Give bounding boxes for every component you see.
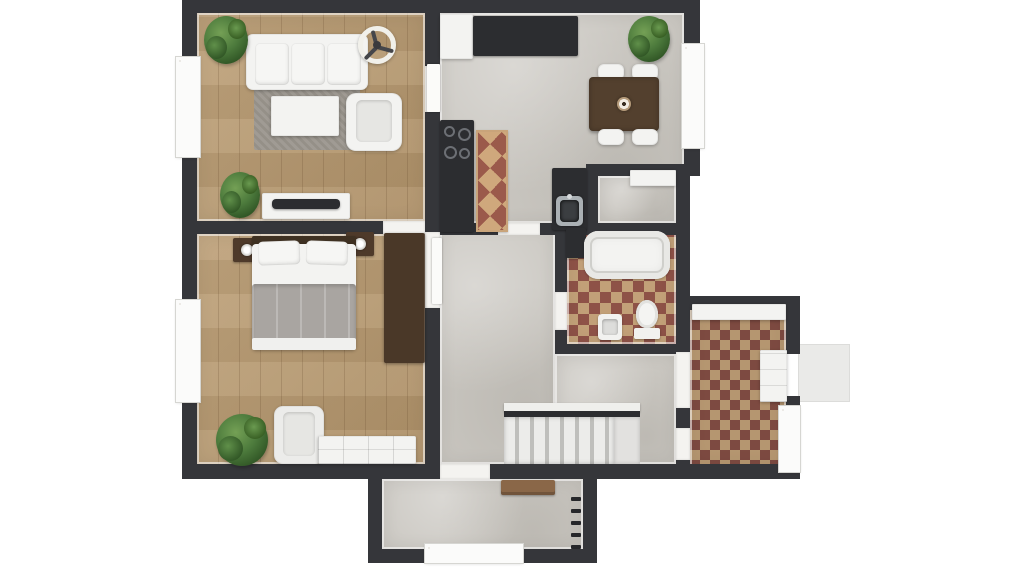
sink-basin [560, 200, 579, 222]
potted-plant [216, 414, 268, 466]
window-pane [179, 60, 181, 62]
cooktop-burner [458, 128, 471, 141]
entry-door [425, 544, 523, 563]
potted-plant [628, 16, 670, 62]
door-pane [782, 409, 784, 411]
bathroom-cabinet [566, 228, 586, 258]
sofa-cushion [327, 43, 361, 85]
sofa-cushion [255, 43, 289, 85]
wall-center-mid [425, 112, 440, 232]
wall-dining-right-upper [684, 0, 700, 45]
fan-hub [373, 41, 381, 49]
armchair-seat [356, 100, 392, 142]
window-pane [179, 303, 181, 305]
wall-center-lower [425, 308, 440, 479]
window-living-room [176, 57, 200, 157]
sink-counter [552, 168, 587, 230]
toilet-tank [634, 328, 660, 339]
door-leaf-bedroom [432, 238, 442, 304]
doorway-mudroom-upper [676, 352, 690, 408]
pillow [306, 240, 349, 265]
door-pane [428, 547, 430, 549]
kitchen-sink [556, 196, 583, 226]
wall-bath-bottom [555, 344, 676, 354]
floor-plan [0, 0, 1024, 576]
coat-hook [571, 497, 581, 501]
patio-door [779, 406, 800, 472]
toilet [634, 300, 660, 340]
dresser [318, 436, 416, 464]
wall-bath-right [676, 164, 690, 296]
faucet [567, 194, 572, 199]
wall-mudroom-right-upper [786, 296, 800, 354]
bedroom-armchair [274, 406, 324, 464]
potted-plant [220, 172, 260, 218]
storage-cabinet [760, 350, 787, 402]
doorway-bathroom [555, 292, 567, 330]
window-dining [682, 44, 704, 148]
sofa [246, 34, 368, 90]
wall-mudroom-left-mid [676, 408, 690, 428]
window-bedroom [176, 300, 200, 402]
dining-chair [632, 129, 658, 145]
wall-vestibule-bottom-left [368, 549, 425, 563]
coat-hook [571, 509, 581, 513]
bathtub [584, 231, 670, 279]
wall-bottom-left [182, 464, 440, 479]
basin [602, 319, 618, 335]
cooktop-burner [444, 146, 457, 159]
wall-left-upper [182, 0, 197, 60]
doorway-vestibule-entry [440, 464, 490, 479]
ceiling-fan [358, 26, 396, 64]
wall-left-mid [182, 155, 197, 303]
stair-treads [504, 417, 614, 464]
wall-hall-bottom [490, 464, 686, 479]
washbasin [598, 314, 622, 340]
stair-landing [614, 417, 640, 464]
entry-bench [501, 480, 555, 495]
wall-center-upper [425, 0, 440, 66]
dining-table [589, 77, 659, 131]
closet-shelf [630, 170, 676, 186]
sofa-cushion [291, 43, 325, 85]
coat-hook [571, 521, 581, 525]
pillow [258, 240, 301, 265]
cooktop-burner [444, 126, 455, 137]
armchair [346, 93, 402, 151]
doorstep-pad [798, 344, 850, 402]
double-bed [252, 236, 356, 350]
runner-rug [476, 130, 508, 232]
refrigerator [440, 14, 473, 59]
coat-hook [571, 533, 581, 537]
wall-mudroom-left-upper [676, 296, 690, 352]
staircase [504, 403, 640, 464]
toilet-bowl [636, 300, 658, 328]
wall-counter [473, 16, 578, 56]
door-leaf-living-kitchen [427, 64, 440, 112]
cooktop-counter [440, 120, 474, 232]
wall-vestibule-bottom-right [523, 549, 597, 563]
blanket [252, 284, 356, 342]
coffee-table [271, 96, 339, 136]
wall-top [182, 0, 700, 13]
table-centerpiece [617, 97, 631, 111]
dining-chair [598, 129, 624, 145]
window-pane [685, 47, 687, 49]
coat-hook [571, 545, 581, 549]
doorway-mudroom-lower [676, 428, 690, 460]
potted-plant [204, 16, 248, 64]
tv-screen [272, 199, 340, 209]
armchair-seat [283, 412, 315, 456]
bed-foot-sheet [252, 338, 356, 350]
mudroom-counter-shelf [692, 304, 786, 320]
cooktop-burner [459, 148, 470, 159]
wardrobe [384, 233, 425, 363]
